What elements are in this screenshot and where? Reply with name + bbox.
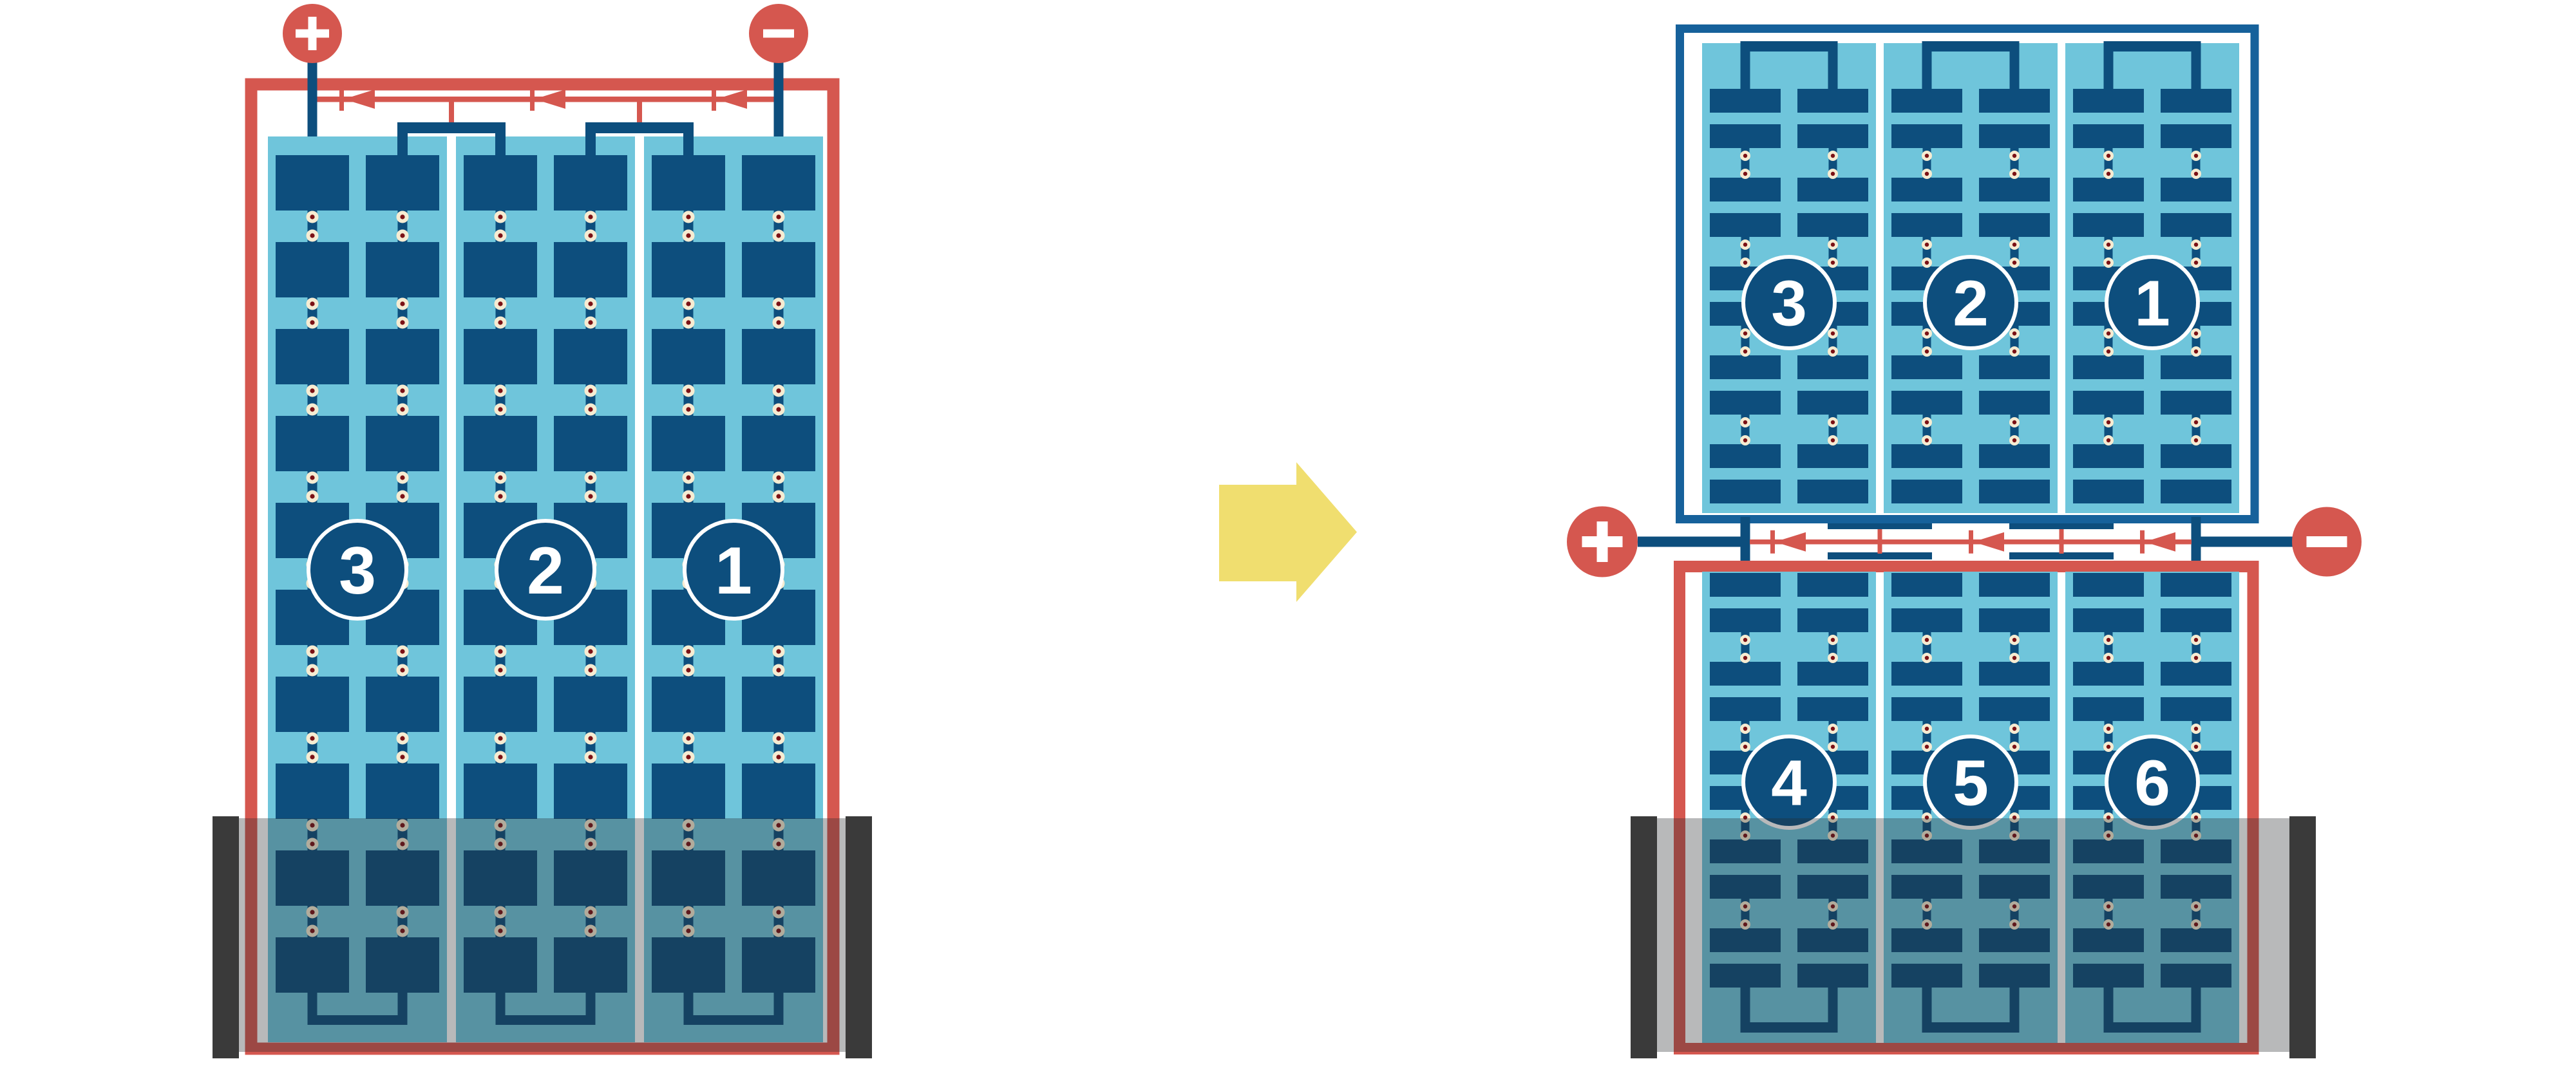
- transition-arrow-icon: [1219, 462, 1357, 602]
- solder-dot-core: [2107, 638, 2110, 642]
- solder-dot-core: [498, 233, 502, 238]
- diode-cathode-bar-icon: [530, 88, 535, 111]
- solder-dot-core: [400, 668, 404, 672]
- cell-number-badge: 3: [308, 521, 406, 619]
- cell-plate: [742, 329, 815, 384]
- cell-plate: [1979, 573, 2050, 597]
- solder-dot-core: [400, 233, 404, 238]
- cell-plate: [366, 416, 439, 471]
- diode-icon: [1775, 532, 1806, 552]
- diode-cathode-bar-icon: [339, 88, 344, 111]
- cell-plate: [652, 242, 725, 297]
- solder-dot-core: [1831, 745, 1835, 749]
- solder-dot-core: [2012, 745, 2016, 749]
- solder-dot-core: [1925, 154, 1929, 158]
- cell-plate: [276, 155, 349, 211]
- solder-dot-core: [1831, 638, 1835, 642]
- cell-plate: [276, 329, 349, 384]
- cell-plate: [1797, 444, 1868, 468]
- cell-plate: [1797, 573, 1868, 597]
- positive-terminal-icon: [1567, 507, 1638, 577]
- solder-dot-core: [588, 649, 592, 653]
- solder-dot-core: [1831, 420, 1835, 424]
- solder-dot-core: [2194, 727, 2198, 731]
- cell-number-label: 3: [339, 534, 376, 608]
- top-bus-bar-leg: [2192, 41, 2201, 91]
- diode-icon: [344, 89, 375, 109]
- solder-dot-core: [2107, 154, 2110, 158]
- solder-dot-core: [1925, 638, 1929, 642]
- cell-plate: [742, 242, 815, 297]
- solder-dot-core: [498, 649, 502, 653]
- cell-plate: [554, 764, 627, 819]
- solder-dot-core: [2194, 656, 2198, 660]
- cell-plate: [366, 764, 439, 819]
- solder-dot-core: [498, 754, 502, 759]
- cell-plate: [1710, 355, 1781, 379]
- cell-plate: [2073, 178, 2144, 201]
- diode-cathode-bar-icon: [1969, 530, 1973, 554]
- positive-terminal-icon: [283, 4, 342, 63]
- cell-plate: [1710, 608, 1781, 632]
- cell-plate: [2161, 124, 2231, 148]
- diode-cathode-bar-icon: [1770, 530, 1775, 554]
- solder-dot-core: [1925, 243, 1929, 247]
- solder-dot-core: [2107, 172, 2110, 176]
- solder-dot-core: [1925, 172, 1929, 176]
- solder-dot-core: [2107, 261, 2110, 265]
- top-bus-bar: [1741, 41, 1838, 52]
- cell-plate: [1891, 213, 1962, 237]
- left-module: 321: [213, 4, 872, 1058]
- solder-dot-core: [776, 649, 781, 653]
- top-bus-bar-leg: [2104, 41, 2114, 91]
- cell-plate: [1797, 355, 1868, 379]
- cell-plate: [2161, 480, 2231, 503]
- solder-dot-core: [776, 214, 781, 219]
- cell-plate: [742, 764, 815, 819]
- solder-dot-core: [498, 320, 502, 324]
- solder-dot-core: [1743, 332, 1747, 335]
- solder-dot-core: [2194, 332, 2198, 335]
- cell-plate: [742, 416, 815, 471]
- solder-dot-core: [588, 475, 592, 480]
- cell-plate: [1797, 124, 1868, 148]
- solder-dot-core: [310, 475, 314, 480]
- solder-dot-core: [498, 301, 502, 306]
- cell-plate: [1979, 697, 2050, 721]
- diode-cathode-bar-icon: [712, 88, 716, 111]
- solder-dot-core: [588, 320, 592, 324]
- solder-dot-core: [776, 494, 781, 498]
- top-bus-bar-leg: [1741, 41, 1750, 91]
- solder-dot-core: [2107, 420, 2110, 424]
- cell-plate: [464, 329, 537, 384]
- cell-plate: [1891, 480, 1962, 503]
- cell-plate: [1710, 662, 1781, 686]
- cell-plate: [1710, 480, 1781, 503]
- solder-dot-core: [2012, 172, 2016, 176]
- cell-plate: [1710, 391, 1781, 415]
- solder-dot-core: [400, 649, 404, 653]
- solder-dot-core: [2194, 172, 2198, 176]
- wire-stub: [637, 99, 642, 124]
- solder-dot-core: [776, 233, 781, 238]
- solder-dot-core: [1925, 745, 1929, 749]
- solder-dot-core: [498, 407, 502, 411]
- cell-plate: [1979, 608, 2050, 632]
- cell-plate: [2161, 178, 2231, 201]
- solder-dot-core: [400, 388, 404, 393]
- cell-plate: [652, 677, 725, 732]
- solder-dot-core: [588, 301, 592, 306]
- solder-dot-core: [1743, 261, 1747, 265]
- cell-number-badge: 3: [1743, 257, 1835, 348]
- cell-plate: [1710, 178, 1781, 201]
- cell-plate: [554, 155, 627, 211]
- cell-plate: [464, 416, 537, 471]
- cell-plate: [1797, 697, 1868, 721]
- solder-dot-core: [686, 320, 690, 324]
- wire-stub: [2060, 529, 2064, 554]
- interconnect-tab: [2009, 523, 2114, 529]
- cell-plate: [2161, 662, 2231, 686]
- cell-plate: [2161, 213, 2231, 237]
- solder-dot-core: [1743, 420, 1747, 424]
- cell-number-label: 2: [527, 534, 564, 608]
- holder-side-bar: [846, 816, 872, 1058]
- solder-dot-core: [686, 668, 690, 672]
- bus-bar-leg: [397, 122, 408, 161]
- cell-plate: [1710, 444, 1781, 468]
- diode-cathode-bar-icon: [2140, 530, 2145, 554]
- solder-dot-core: [2107, 438, 2110, 442]
- cell-plate: [2073, 662, 2144, 686]
- solder-dot-core: [2012, 420, 2016, 424]
- solder-dot-core: [310, 754, 314, 759]
- solder-dot-core: [2194, 261, 2198, 265]
- holder-overlay: [1645, 818, 2302, 1052]
- solder-dot-core: [1925, 727, 1929, 731]
- solder-dot-core: [588, 754, 592, 759]
- solder-dot-core: [776, 301, 781, 306]
- cell-plate: [554, 416, 627, 471]
- cell-plate: [1710, 697, 1781, 721]
- solder-dot-core: [1925, 350, 1929, 353]
- solder-dot-core: [310, 407, 314, 411]
- solder-dot-core: [310, 214, 314, 219]
- solder-dot-core: [2194, 243, 2198, 247]
- cell-plate: [1891, 573, 1962, 597]
- top-bus-bar: [1922, 41, 2020, 52]
- solder-dot-core: [498, 736, 502, 740]
- negative-terminal-icon: [2292, 507, 2362, 577]
- solder-dot-core: [498, 388, 502, 393]
- solder-dot-core: [1831, 243, 1835, 247]
- solder-dot-core: [1925, 438, 1929, 442]
- solder-dot-core: [400, 494, 404, 498]
- solder-dot-core: [1925, 261, 1929, 265]
- solder-dot-core: [588, 494, 592, 498]
- solder-dot-core: [400, 736, 404, 740]
- wire-stub: [449, 99, 454, 124]
- solder-dot-core: [2194, 350, 2198, 353]
- cell-number-badge: 5: [1925, 736, 2016, 828]
- cell-plate: [1797, 213, 1868, 237]
- solder-dot-core: [1743, 172, 1747, 176]
- solder-dot-core: [1831, 727, 1835, 731]
- diode-icon: [716, 89, 747, 109]
- cell-plate: [1891, 355, 1962, 379]
- solder-dot-core: [1925, 420, 1929, 424]
- cell-plate: [464, 242, 537, 297]
- solder-dot-core: [2107, 350, 2110, 353]
- cell-plate: [2073, 573, 2144, 597]
- terminal-post: [1741, 517, 1750, 561]
- cell-plate: [1797, 89, 1868, 113]
- solder-dot-core: [2107, 332, 2110, 335]
- cell-plate: [1979, 89, 2050, 113]
- solder-dot-core: [686, 214, 690, 219]
- wire-stub: [1878, 529, 1882, 554]
- cell-plate: [1710, 213, 1781, 237]
- cell-plate: [1891, 444, 1962, 468]
- cell-plate: [1979, 124, 2050, 148]
- solder-dot-core: [498, 475, 502, 480]
- solder-dot-core: [498, 494, 502, 498]
- negative-terminal-icon: [749, 4, 808, 63]
- cell-plate: [652, 764, 725, 819]
- cell-plate: [1797, 178, 1868, 201]
- solder-dot-core: [2107, 745, 2110, 749]
- cell-plate: [366, 329, 439, 384]
- solder-dot-core: [2194, 438, 2198, 442]
- solder-dot-core: [400, 320, 404, 324]
- solder-dot-core: [2194, 420, 2198, 424]
- cell-plate: [2073, 213, 2144, 237]
- figure-canvas: 321321456: [0, 0, 2576, 1068]
- bus-bar-top: [585, 122, 694, 133]
- solder-dot-core: [2107, 656, 2110, 660]
- solder-dot-core: [1743, 727, 1747, 731]
- terminal-lead: [2199, 537, 2293, 547]
- solder-dot-core: [400, 475, 404, 480]
- cell-number-label: 6: [2134, 747, 2170, 820]
- solder-dot-core: [400, 407, 404, 411]
- cell-plate: [464, 155, 537, 211]
- solder-dot-core: [2107, 727, 2110, 731]
- solder-dot-core: [1831, 656, 1835, 660]
- cell-plate: [366, 677, 439, 732]
- cell-number-badge: 4: [1743, 736, 1835, 828]
- cell-plate: [2073, 124, 2144, 148]
- cell-plate: [366, 242, 439, 297]
- bus-bar-leg: [495, 122, 506, 161]
- solder-dot-core: [686, 388, 690, 393]
- cell-number-badge: 2: [1925, 257, 2016, 348]
- solder-dot-core: [2194, 745, 2198, 749]
- cell-plate: [464, 677, 537, 732]
- solder-dot-core: [1831, 350, 1835, 353]
- solder-dot-core: [1831, 172, 1835, 176]
- holder-overlay: [226, 818, 858, 1052]
- cell-plate: [1979, 213, 2050, 237]
- battery-reconfiguration-diagram: 321321456: [0, 0, 2576, 1068]
- cell-plate: [276, 242, 349, 297]
- solder-dot-core: [1743, 243, 1747, 247]
- solder-dot-core: [498, 214, 502, 219]
- top-bus-bar: [2104, 41, 2201, 52]
- cell-plate: [464, 764, 537, 819]
- cell-plate: [1710, 573, 1781, 597]
- cell-plate: [1979, 178, 2050, 201]
- cell-number-label: 1: [2134, 268, 2170, 340]
- cell-number-badge: 6: [2107, 736, 2198, 828]
- bus-bar-leg: [585, 122, 596, 161]
- cell-plate: [554, 677, 627, 732]
- solder-dot-core: [1743, 745, 1747, 749]
- cell-plate: [1891, 124, 1962, 148]
- cell-plate: [1979, 480, 2050, 503]
- cell-plate: [1891, 662, 1962, 686]
- diode-icon: [535, 89, 565, 109]
- cell-plate: [2161, 573, 2231, 597]
- cell-number-badge: 1: [2107, 257, 2198, 348]
- cell-plate: [1979, 662, 2050, 686]
- cell-plate: [1710, 124, 1781, 148]
- cell-number-badge: 1: [685, 521, 782, 619]
- cell-number-label: 4: [1771, 747, 1807, 820]
- cell-plate: [366, 155, 439, 211]
- solder-dot-core: [1831, 332, 1835, 335]
- cell-plate: [2161, 697, 2231, 721]
- cell-plate: [276, 764, 349, 819]
- cell-plate: [2161, 89, 2231, 113]
- solder-dot-core: [310, 233, 314, 238]
- cell-plate: [1710, 89, 1781, 113]
- cell-plate: [2073, 480, 2144, 503]
- cell-plate: [2073, 444, 2144, 468]
- solder-dot-core: [310, 301, 314, 306]
- cell-plate: [2161, 355, 2231, 379]
- solder-dot-core: [2012, 154, 2016, 158]
- cell-plate: [2073, 608, 2144, 632]
- bus-bar-top: [397, 122, 506, 133]
- solder-dot-core: [776, 736, 781, 740]
- solder-dot-core: [2012, 638, 2016, 642]
- solder-dot-core: [400, 214, 404, 219]
- solder-dot-core: [1743, 638, 1747, 642]
- solder-dot-core: [310, 736, 314, 740]
- solder-dot-core: [1925, 332, 1929, 335]
- terminal-lead: [1638, 537, 1741, 547]
- cell-plate: [554, 329, 627, 384]
- holder-side-bar: [213, 816, 239, 1058]
- cell-plate: [276, 677, 349, 732]
- solder-dot-core: [2012, 332, 2016, 335]
- holder-side-bar: [2289, 816, 2316, 1058]
- cell-number-label: 5: [1953, 747, 1989, 820]
- holder-side-bar: [1631, 816, 1657, 1058]
- top-bus-bar-leg: [1828, 41, 1838, 91]
- cell-plate: [1891, 391, 1962, 415]
- solder-dot-core: [588, 214, 592, 219]
- solder-dot-core: [776, 388, 781, 393]
- cell-plate: [1891, 697, 1962, 721]
- right-assembly: 321456: [1567, 29, 2362, 1059]
- solder-dot-core: [588, 736, 592, 740]
- solder-dot-core: [1743, 154, 1747, 158]
- cell-plate: [1797, 662, 1868, 686]
- solder-dot-core: [498, 668, 502, 672]
- solder-dot-core: [400, 754, 404, 759]
- solder-dot-core: [686, 475, 690, 480]
- solder-dot-core: [2012, 656, 2016, 660]
- cell-plate: [1979, 355, 2050, 379]
- cell-plate: [1891, 608, 1962, 632]
- solder-dot-core: [588, 233, 592, 238]
- solder-dot-core: [776, 754, 781, 759]
- cell-plate: [554, 242, 627, 297]
- solder-dot-core: [588, 388, 592, 393]
- cell-plate: [2161, 608, 2231, 632]
- solder-dot-core: [2012, 243, 2016, 247]
- cell-plate: [2073, 89, 2144, 113]
- solder-dot-core: [1831, 154, 1835, 158]
- solder-dot-core: [2012, 350, 2016, 353]
- solder-dot-core: [1743, 438, 1747, 442]
- solder-dot-core: [588, 668, 592, 672]
- solder-dot-core: [776, 407, 781, 411]
- plus-glyph: [308, 17, 317, 50]
- interconnect-tab: [1828, 523, 1932, 529]
- top-bus-bar-leg: [2010, 41, 2020, 91]
- cell-plate: [2073, 355, 2144, 379]
- cell-plate: [1797, 608, 1868, 632]
- solder-dot-core: [686, 736, 690, 740]
- cell-plate: [2073, 697, 2144, 721]
- solder-dot-core: [2012, 438, 2016, 442]
- solder-dot-core: [686, 649, 690, 653]
- solder-dot-core: [776, 668, 781, 672]
- solder-dot-core: [686, 754, 690, 759]
- solder-dot-core: [310, 649, 314, 653]
- top-bus-bar-leg: [1922, 41, 1932, 91]
- solder-dot-core: [2107, 243, 2110, 247]
- solder-dot-core: [1831, 261, 1835, 265]
- solder-dot-core: [588, 407, 592, 411]
- cell-plate: [742, 155, 815, 211]
- cell-plate: [2073, 391, 2144, 415]
- solder-dot-core: [310, 668, 314, 672]
- cell-plate: [1797, 391, 1868, 415]
- solder-dot-core: [2012, 727, 2016, 731]
- solder-dot-core: [2012, 261, 2016, 265]
- cell-number-badge: 2: [497, 521, 594, 619]
- solder-dot-core: [310, 494, 314, 498]
- minus-glyph: [2307, 536, 2347, 547]
- plus-glyph: [1597, 521, 1608, 562]
- cell-plate: [1891, 178, 1962, 201]
- solder-dot-core: [686, 494, 690, 498]
- solder-dot-core: [2194, 154, 2198, 158]
- solder-dot-core: [400, 301, 404, 306]
- cell-plate: [1891, 89, 1962, 113]
- solder-dot-core: [776, 475, 781, 480]
- cell-plate: [742, 677, 815, 732]
- cell-plate: [276, 416, 349, 471]
- cell-plate: [1979, 444, 2050, 468]
